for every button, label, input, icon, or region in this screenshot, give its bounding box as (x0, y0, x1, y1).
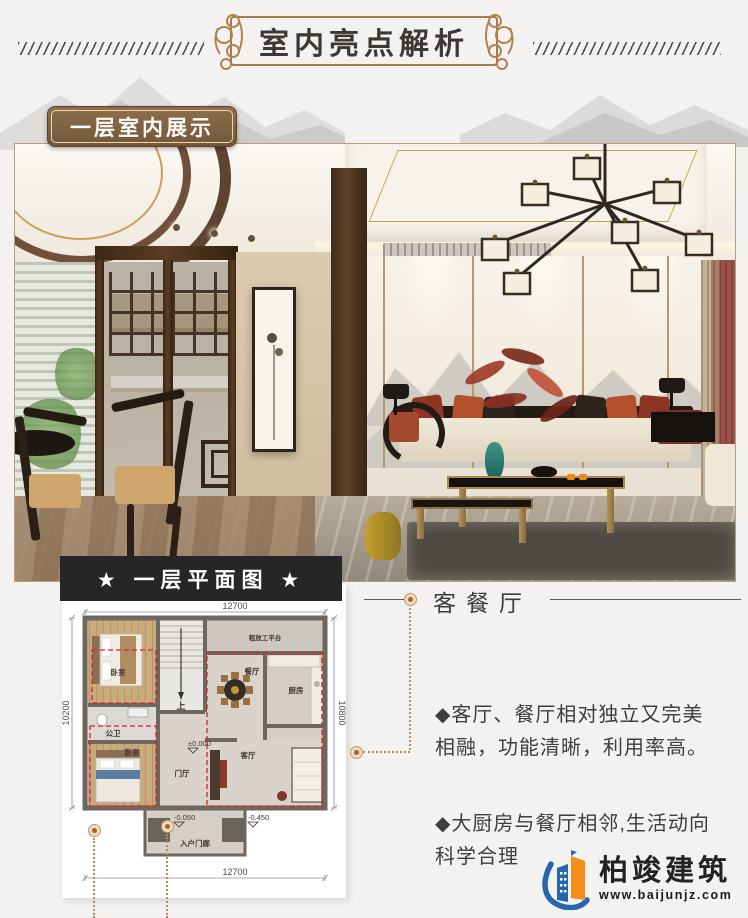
leader-line-porch (166, 834, 168, 918)
page-title: 室内亮点解析 (259, 19, 469, 63)
plan-level-zero: ±0.000 (188, 739, 211, 748)
photo-pillow (389, 412, 419, 442)
leader-dot-bedroom (88, 824, 101, 837)
plan-dim-top: 12700 (222, 601, 247, 611)
photo-rug (407, 522, 736, 580)
photo-table-lamp (659, 378, 685, 393)
photo-chair-cushion (29, 474, 81, 508)
logo-site: www.baijunjz.com (599, 888, 732, 902)
plan-label-kitchen: 厨房 (289, 685, 304, 695)
cloud-scroll-icon-right (482, 8, 522, 78)
photo-lamp-stem (670, 393, 673, 409)
section-label-plaque: 一层室内展示 (47, 106, 237, 147)
photo-lamp-stem (394, 399, 397, 415)
logo-name: 柏竣建筑 (599, 856, 732, 886)
plan-label-dining: 餐厅 (244, 666, 260, 676)
floor-plan-banner: ★ 一层平面图 ★ (60, 556, 342, 601)
plan-dim-left: 10200 (62, 700, 71, 725)
photo-table-leg (417, 509, 424, 539)
photo-downlight (173, 224, 180, 231)
interior-photo (14, 143, 736, 582)
feature-bullet-1: ◆客厅、餐厅相对独立又完美相融，功能清晰，利用率高。 (435, 699, 713, 765)
hatch-lines-left (18, 42, 204, 55)
photo-white-armchair (705, 444, 736, 506)
title-frame: 室内亮点解析 (230, 16, 498, 66)
plan-dim-bottom: 12700 (222, 867, 247, 877)
plan-label-terrace: 粗放工平台 (249, 633, 282, 642)
plan-level-outside: -0.450 (248, 813, 269, 822)
callout-line-left (364, 599, 404, 600)
photo-outdoor-plant (55, 344, 99, 404)
photo-coffee-table (447, 476, 625, 489)
callout-dot-top (404, 593, 417, 606)
plan-dining-set (217, 672, 253, 708)
callout-title: 客餐厅 (433, 584, 532, 618)
callout-dot-plan (350, 746, 363, 759)
plan-label-bedroom-bottom: 卧室 (125, 747, 140, 757)
photo-table-lamp (383, 384, 409, 399)
photo-chair-cushion (115, 466, 175, 504)
photo-nesting-table (411, 498, 533, 509)
page: 室内亮点解析 一层室内展示 (0, 0, 748, 918)
plan-label-porch: 入户门廊 (179, 838, 210, 848)
plan-label-bedroom-top: 卧室 (111, 667, 126, 677)
mountains-right-decoration (460, 75, 748, 147)
plan-label-living: 客厅 (240, 750, 256, 760)
photo-door-header (95, 246, 238, 260)
callout-leader-horizontal (363, 751, 410, 753)
floor-plan: 12700 12700 10200 10800 卧室 公卫 卧室 门厅 客厅 餐… (62, 584, 346, 898)
leader-dot-porch (161, 820, 174, 833)
chandelier-icon (455, 144, 735, 334)
logo: 柏竣建筑 www.baijunjz.com (541, 848, 732, 910)
photo-side-console (651, 412, 715, 442)
photo-tea-cup (579, 474, 587, 480)
logo-building-icon (541, 848, 593, 910)
callout-leader-vertical (409, 608, 411, 750)
photo-table-leg (519, 509, 526, 543)
callout-line-right (550, 599, 741, 600)
floor-plan-banner-label: ★ 一层平面图 ★ (97, 564, 305, 594)
plan-dim-right: 10800 (337, 700, 346, 725)
photo-downlight (248, 235, 255, 242)
plan-label-foyer: 门厅 (175, 768, 190, 778)
cloud-scroll-icon-left (206, 8, 246, 78)
photo-teal-vase (485, 442, 504, 480)
section-label: 一层室内展示 (70, 112, 214, 142)
photo-drum-stool (365, 512, 401, 560)
photo-tea-cup (567, 474, 575, 480)
plan-level-porch: -0.050 (174, 813, 195, 822)
photo-downlight (211, 230, 218, 237)
plan-label-bath: 公卫 (106, 729, 121, 738)
photo-scroll-painting (252, 287, 296, 452)
leader-line-bedroom (93, 838, 95, 918)
plan-label-stairs-up: 上 (176, 700, 185, 711)
photo-table-leg (607, 489, 614, 533)
photo-teapot (531, 466, 557, 477)
hatch-lines-right (533, 42, 721, 55)
